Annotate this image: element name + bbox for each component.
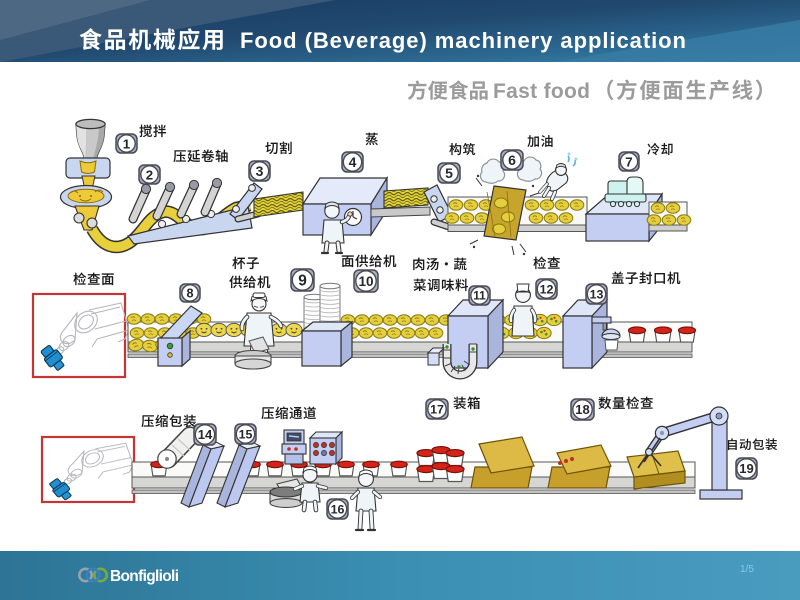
svg-text:12: 12 [540,283,554,297]
svg-text:5: 5 [445,165,453,181]
svg-text:9: 9 [298,273,307,290]
svg-text:8: 8 [186,287,193,301]
svg-text:2: 2 [146,167,153,182]
svg-text:Food (Beverage) machinery appl: Food (Beverage) machinery application [240,28,686,53]
svg-text:16: 16 [331,503,345,517]
svg-text:11: 11 [473,289,486,303]
svg-text:19: 19 [739,461,753,476]
svg-text:7: 7 [625,154,632,169]
svg-text:6: 6 [508,152,516,168]
svg-text:3: 3 [256,163,264,179]
svg-text:10: 10 [358,274,373,289]
svg-text:Fast food: Fast food [493,80,590,103]
svg-text:14: 14 [198,427,213,442]
svg-text:1/5: 1/5 [740,564,754,575]
svg-text:13: 13 [590,288,604,302]
svg-text:Bonfiglioli: Bonfiglioli [110,568,179,585]
svg-text:18: 18 [575,402,589,417]
svg-text:17: 17 [430,403,444,417]
svg-text:4: 4 [349,154,357,170]
svg-text:15: 15 [239,428,253,442]
svg-text:1: 1 [123,136,131,151]
